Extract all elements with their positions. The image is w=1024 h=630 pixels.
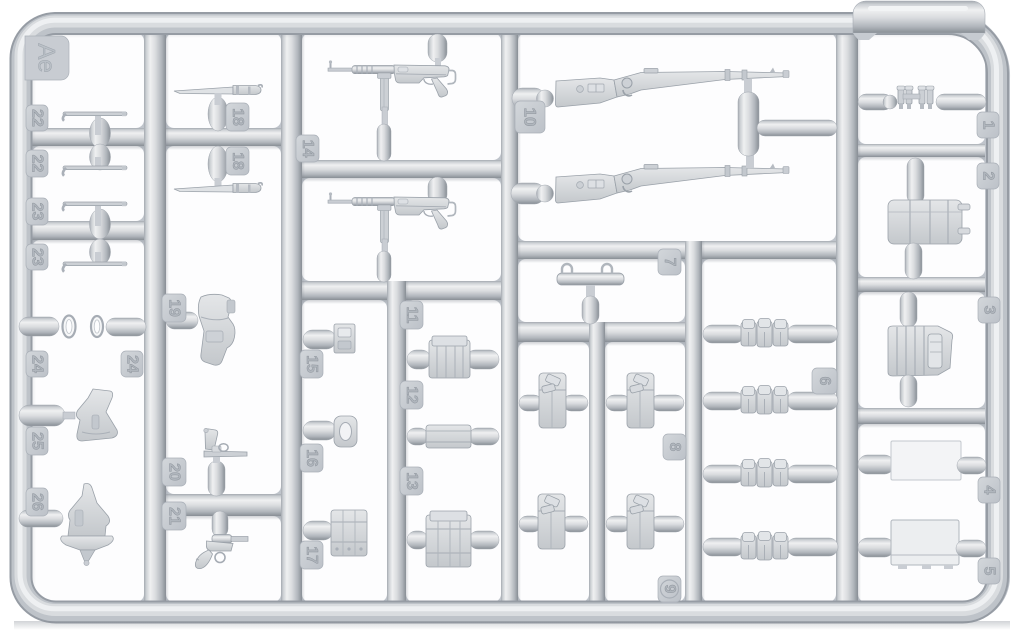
svg-text:3: 3 [981, 306, 998, 315]
svg-text:11: 11 [403, 307, 420, 324]
svg-text:14: 14 [299, 140, 316, 158]
svg-text:6: 6 [816, 377, 833, 386]
svg-text:7: 7 [661, 258, 678, 267]
svg-text:18: 18 [229, 108, 246, 126]
svg-text:21: 21 [166, 507, 183, 525]
svg-text:8: 8 [666, 443, 683, 452]
svg-text:24: 24 [29, 355, 46, 373]
svg-text:25: 25 [29, 432, 46, 450]
svg-text:1: 1 [980, 121, 997, 130]
svg-text:2: 2 [980, 172, 997, 181]
svg-text:17: 17 [303, 546, 320, 564]
svg-text:22: 22 [29, 109, 46, 127]
svg-text:9: 9 [661, 585, 678, 594]
svg-text:12: 12 [403, 386, 420, 404]
svg-text:Ae: Ae [33, 43, 60, 72]
svg-text:24: 24 [124, 355, 141, 373]
svg-text:4: 4 [981, 486, 998, 495]
svg-text:20: 20 [166, 463, 183, 481]
svg-text:13: 13 [403, 472, 420, 490]
svg-text:18: 18 [229, 152, 246, 170]
svg-text:23: 23 [29, 203, 46, 221]
svg-text:15: 15 [303, 355, 320, 373]
svg-text:16: 16 [303, 449, 320, 467]
svg-text:5: 5 [981, 567, 998, 576]
svg-text:23: 23 [29, 248, 46, 266]
svg-text:10: 10 [521, 108, 540, 127]
svg-text:19: 19 [166, 299, 183, 317]
svg-text:26: 26 [29, 493, 46, 511]
svg-text:22: 22 [29, 155, 46, 173]
